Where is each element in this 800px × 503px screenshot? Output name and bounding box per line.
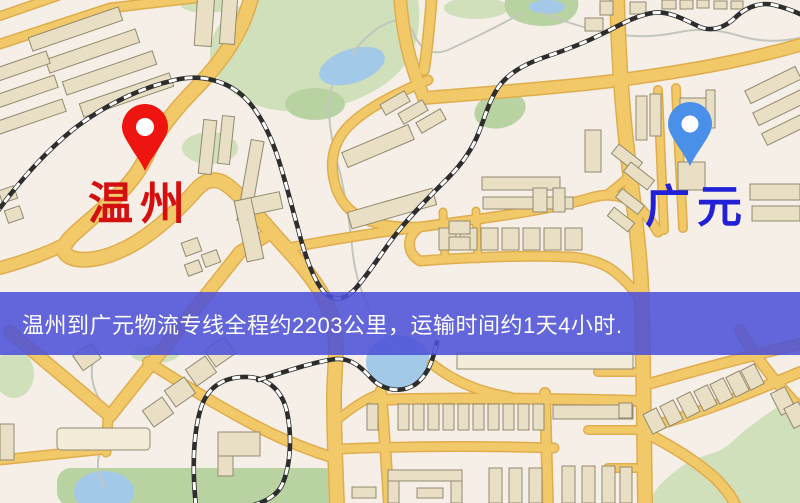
map-pin-icon — [666, 98, 714, 170]
route-info-text: 温州到广元物流专线全程约2203公里，运输时间约1天4小时. — [0, 292, 800, 355]
destination-city-label: 广元 — [645, 184, 749, 229]
map-screenshot: 温州 广元 温州到广元物流专线全程约2203公里，运输时间约1天4小时. — [0, 0, 800, 503]
map-canvas — [0, 0, 800, 503]
origin-map-pin[interactable] — [119, 99, 171, 175]
map-pin-icon — [119, 99, 171, 175]
origin-city-label: 温州 — [88, 181, 192, 226]
destination-map-pin[interactable] — [666, 98, 714, 170]
